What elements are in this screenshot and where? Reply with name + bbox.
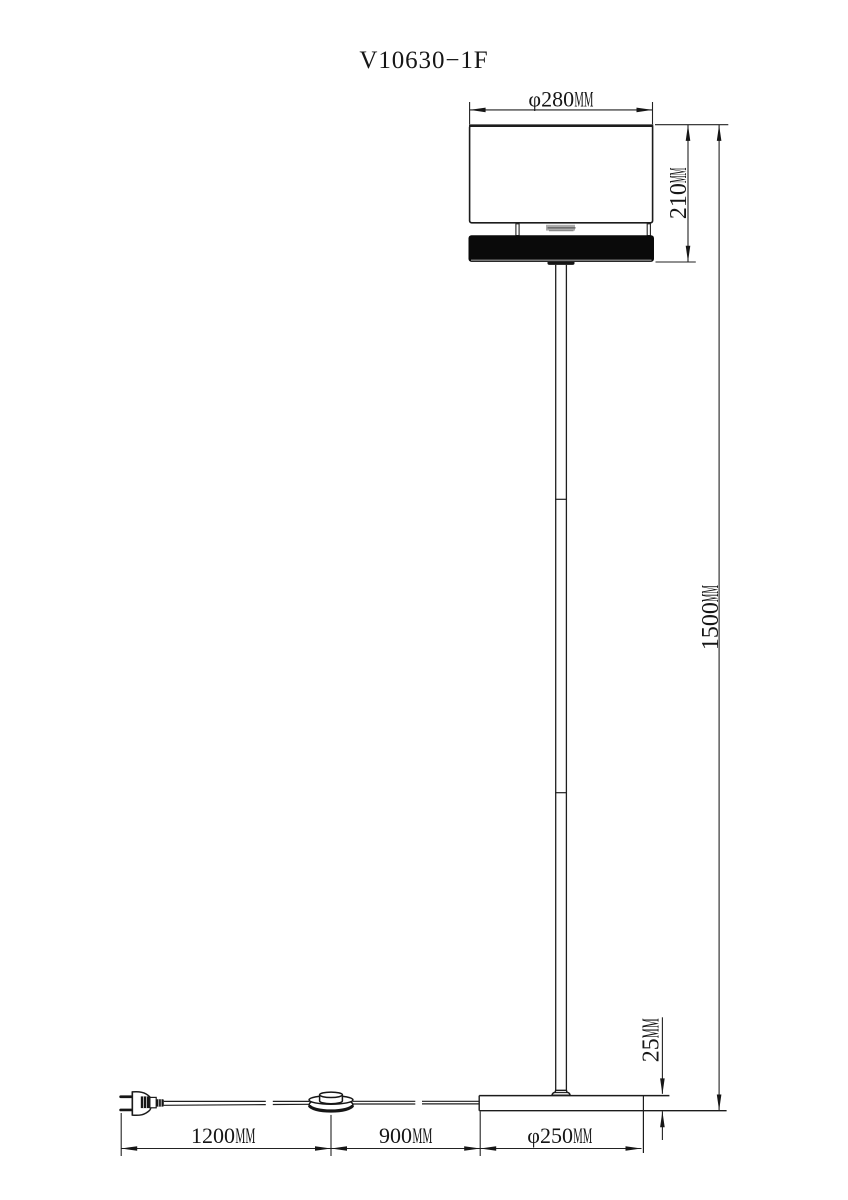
svg-text:MM: MM: [573, 1123, 592, 1148]
svg-text:MM: MM: [698, 585, 724, 602]
svg-text:900: 900: [379, 1123, 412, 1148]
svg-text:φ280: φ280: [528, 86, 574, 111]
svg-text:φ250: φ250: [527, 1123, 573, 1148]
svg-text:V10630−1F: V10630−1F: [359, 47, 488, 74]
svg-text:MM: MM: [639, 1018, 665, 1038]
svg-text:25: 25: [639, 1038, 665, 1062]
svg-text:MM: MM: [574, 86, 593, 111]
svg-text:MM: MM: [235, 1123, 255, 1148]
svg-text:MM: MM: [666, 168, 692, 184]
svg-text:1200: 1200: [191, 1123, 235, 1148]
svg-text:210: 210: [666, 183, 692, 219]
svg-text:MM: MM: [412, 1123, 432, 1148]
svg-text:1500: 1500: [698, 602, 724, 650]
